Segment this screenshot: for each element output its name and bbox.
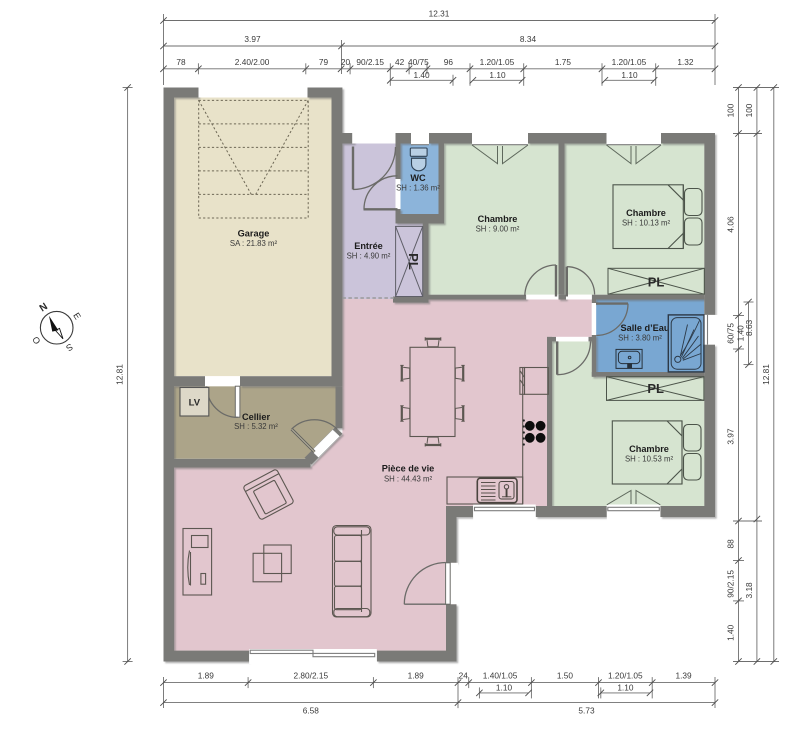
svg-text:SH : 44.43 m²: SH : 44.43 m² [384,474,433,483]
svg-text:1.89: 1.89 [198,671,215,681]
svg-text:24: 24 [459,671,469,681]
svg-text:100: 100 [744,103,754,117]
svg-text:1.10: 1.10 [496,683,513,693]
svg-text:4.06: 4.06 [726,216,736,233]
svg-text:8.63: 8.63 [744,319,754,336]
svg-text:78: 78 [176,57,186,67]
svg-text:1.39: 1.39 [676,671,693,681]
svg-text:Chambre: Chambre [626,208,666,218]
svg-text:Cellier: Cellier [242,412,271,422]
svg-text:1.89: 1.89 [408,671,425,681]
svg-text:3.18: 3.18 [744,582,754,599]
svg-text:42: 42 [395,57,405,67]
svg-text:1.75: 1.75 [555,57,572,67]
svg-text:WC: WC [410,173,426,183]
svg-text:PL: PL [648,275,665,290]
svg-text:Garage: Garage [238,229,270,239]
svg-text:12.31: 12.31 [429,9,450,19]
svg-text:90/2.15: 90/2.15 [726,570,736,598]
svg-text:1.10: 1.10 [617,683,634,693]
svg-text:Pièce de vie: Pièce de vie [382,464,435,474]
svg-text:100: 100 [726,103,736,117]
svg-text:Salle d’Eau: Salle d’Eau [620,323,669,333]
svg-text:40/75: 40/75 [408,57,429,67]
svg-text:1.20/1.05: 1.20/1.05 [480,57,515,67]
svg-text:1.20/1.05: 1.20/1.05 [612,57,647,67]
svg-text:60/75: 60/75 [726,323,736,344]
svg-text:1.10: 1.10 [621,70,638,80]
svg-text:1.32: 1.32 [677,57,694,67]
svg-text:Chambre: Chambre [478,214,518,224]
svg-text:Entrée: Entrée [354,241,383,251]
svg-text:96: 96 [444,57,454,67]
svg-text:88: 88 [726,539,736,549]
svg-text:SH : 10.13 m²: SH : 10.13 m² [622,218,671,227]
svg-text:12.81: 12.81 [761,364,771,385]
svg-text:SA : 21.83 m²: SA : 21.83 m² [230,239,278,248]
svg-text:79: 79 [319,57,329,67]
svg-text:1.10: 1.10 [489,70,506,80]
svg-text:SH : 4.90 m²: SH : 4.90 m² [347,251,391,260]
svg-text:3.97: 3.97 [726,428,736,445]
svg-text:90/2.15: 90/2.15 [356,57,384,67]
svg-text:LV: LV [189,398,201,409]
svg-text:SH : 10.53 m²: SH : 10.53 m² [625,454,674,463]
svg-text:1.40: 1.40 [726,624,736,641]
svg-text:20: 20 [341,57,351,67]
svg-text:PL: PL [647,381,664,396]
svg-text:SH : 3.80 m²: SH : 3.80 m² [618,333,662,342]
svg-text:1.40: 1.40 [414,70,431,80]
svg-text:2.80/2.15: 2.80/2.15 [293,671,328,681]
svg-text:1.40/1.05: 1.40/1.05 [483,671,518,681]
svg-text:SH : 1.36 m²: SH : 1.36 m² [396,183,440,192]
svg-text:5.73: 5.73 [578,706,595,716]
svg-text:SH : 9.00 m²: SH : 9.00 m² [476,224,520,233]
svg-text:1.50: 1.50 [557,671,574,681]
svg-text:8.34: 8.34 [520,34,537,44]
svg-text:1.20/1.05: 1.20/1.05 [608,671,643,681]
svg-text:3.97: 3.97 [244,34,261,44]
svg-text:PL: PL [406,253,421,270]
svg-text:2.40/2.00: 2.40/2.00 [235,57,270,67]
svg-text:6.58: 6.58 [303,706,320,716]
svg-text:Chambre: Chambre [629,444,669,454]
svg-text:12.81: 12.81 [115,364,125,385]
svg-text:SH : 5.32 m²: SH : 5.32 m² [234,422,278,431]
